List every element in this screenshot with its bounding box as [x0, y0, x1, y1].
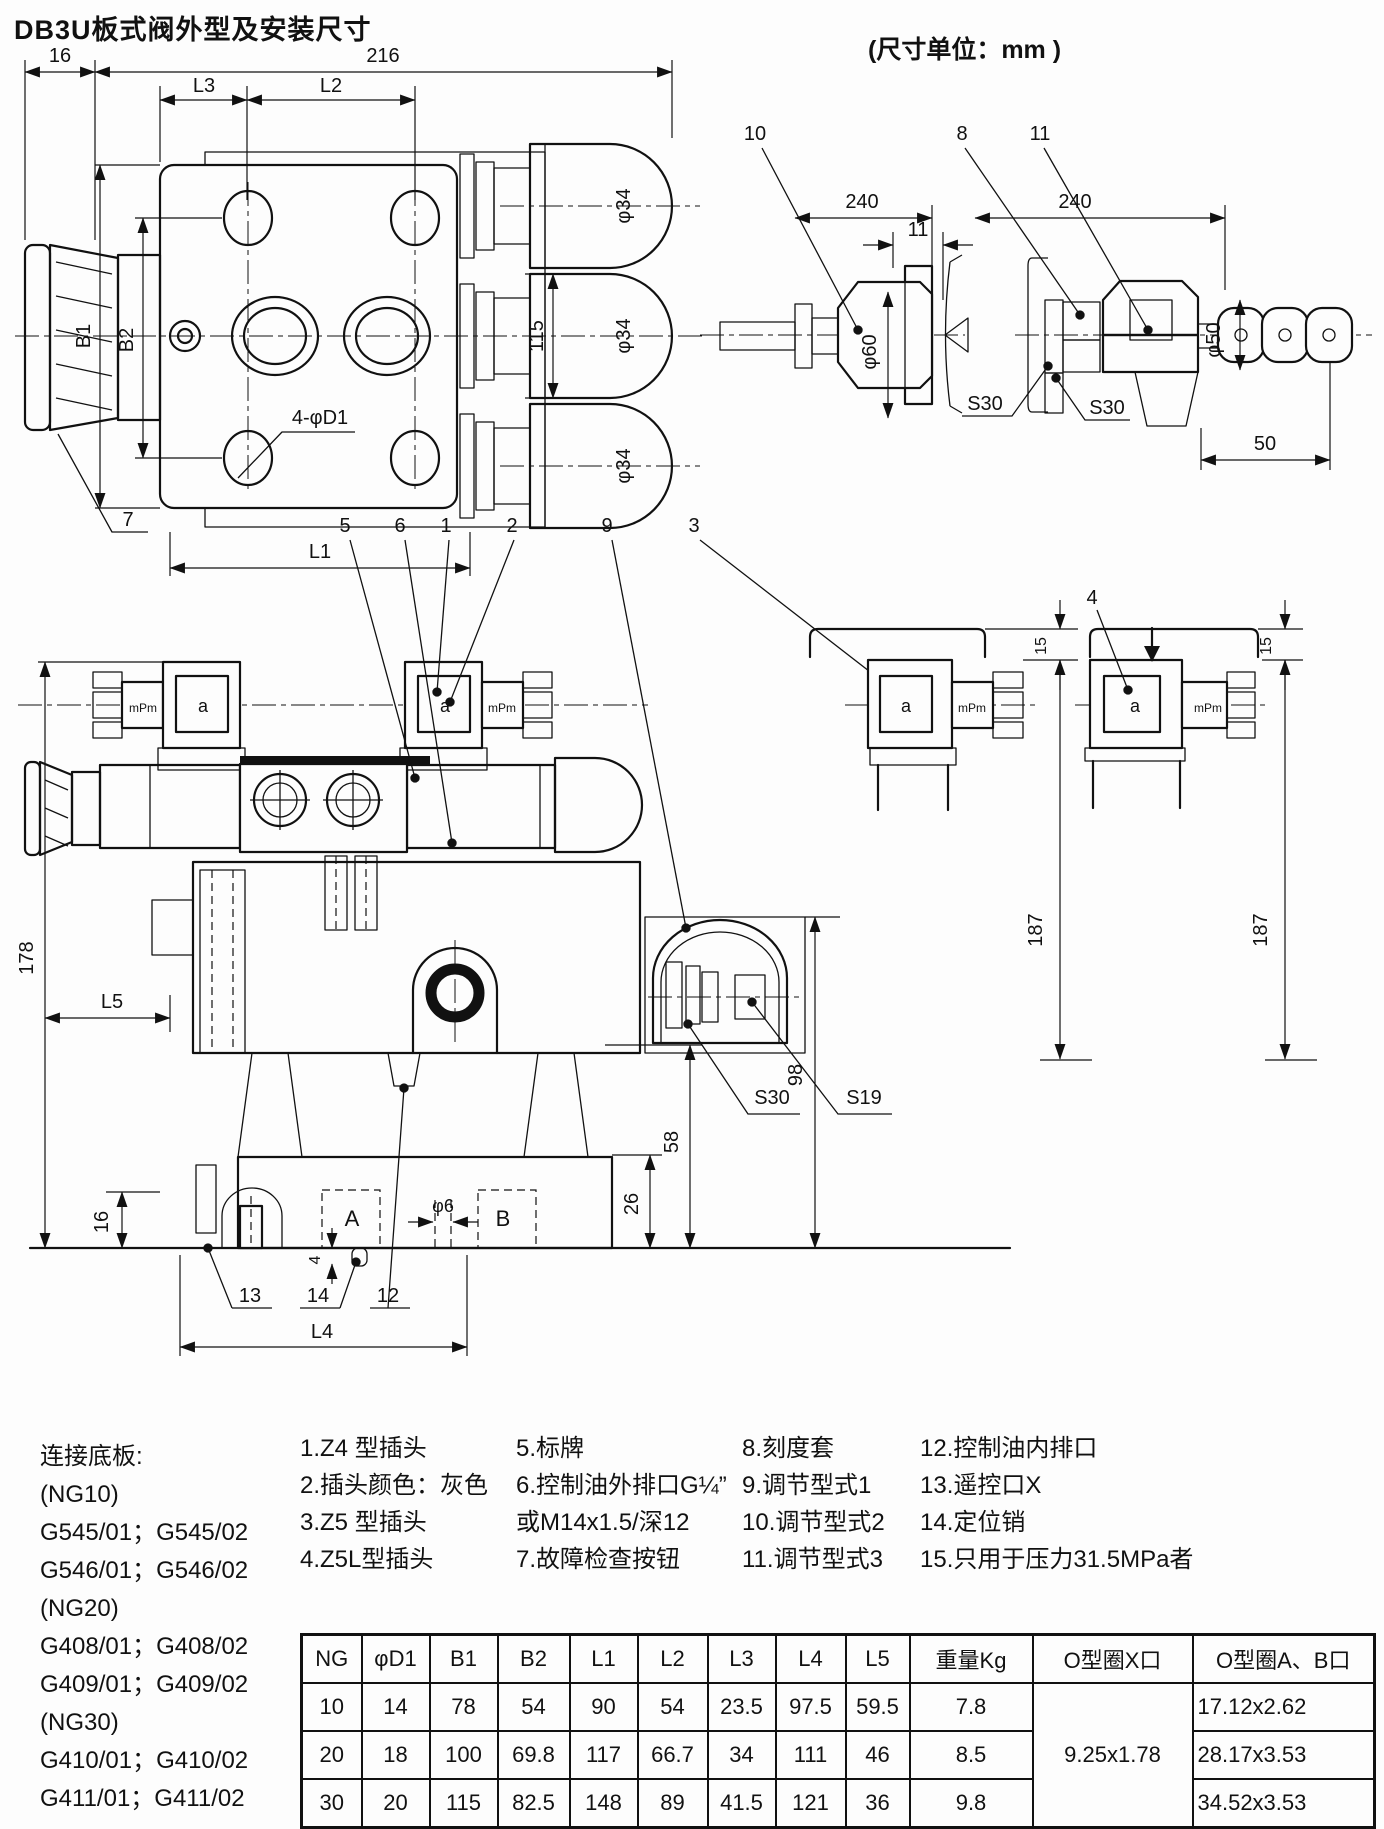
callout-S19: S19: [846, 1087, 882, 1109]
dim-B1: B1: [73, 324, 95, 348]
callout-14: 14: [307, 1285, 329, 1307]
legend-column-4: 12.控制油内排口 13.遥控口X 14.定位销 15.只用于压力31.5MPa…: [920, 1430, 1193, 1578]
legend-item: 9.调节型式1: [742, 1467, 885, 1504]
port-label-B: B: [496, 1206, 511, 1231]
col-header: 重量Kg: [910, 1635, 1033, 1684]
legend-item: 4.Z5L型插头: [300, 1541, 488, 1578]
callout-7: 7: [122, 509, 133, 531]
cell: 17.12x2.62: [1193, 1683, 1375, 1731]
dim-16: 16: [49, 45, 71, 67]
plug-mpm-label: mPm: [958, 701, 986, 715]
col-header: O型圈A、B口: [1193, 1635, 1375, 1684]
cell: 78: [430, 1683, 498, 1731]
dim-4: 4: [307, 1255, 324, 1264]
baseplate-line: 连接底板:: [40, 1438, 248, 1476]
drawing-page: DB3U板式阀外型及安装尺寸 (尺寸单位：mm ): [0, 0, 1384, 1829]
legend-column-3: 8.刻度套 9.调节型式1 10.调节型式2 11.调节型式3: [742, 1430, 885, 1578]
dim-15: 15: [1258, 637, 1275, 655]
adjust-type2-knob: φ60: [720, 255, 962, 418]
cell: 69.8: [498, 1731, 570, 1779]
cell: 117: [570, 1731, 638, 1779]
legend-item: 6.控制油外排口G¼”: [516, 1467, 727, 1504]
dim-L2: L2: [320, 75, 342, 97]
table-row: 20 18 100 69.8 117 66.7 34 111 46 8.5 28…: [302, 1731, 1375, 1779]
legend-item: 5.标牌: [516, 1430, 727, 1467]
adjustment-types-drawing: φ60 φ50: [700, 123, 1372, 470]
legend-item: 12.控制油内排口: [920, 1430, 1193, 1467]
legend-item: 2.插头颜色：灰色: [300, 1467, 488, 1504]
dim-26: 26: [621, 1193, 643, 1215]
cell: 89: [638, 1779, 708, 1828]
cell: 97.5: [776, 1683, 846, 1731]
col-header: L5: [846, 1635, 910, 1684]
dim-phi34: φ34: [613, 318, 635, 353]
legend-item: 11.调节型式3: [742, 1541, 885, 1578]
baseplate-line: (NG10): [40, 1476, 248, 1514]
dim-B2: B2: [116, 328, 138, 352]
cell: 121: [776, 1779, 846, 1828]
cell: 9.8: [910, 1779, 1033, 1828]
cell: 8.5: [910, 1731, 1033, 1779]
side-view-drawing: a mPm a mPm: [16, 515, 1010, 1356]
legend-item: 1.Z4 型插头: [300, 1430, 488, 1467]
dim-16-side: 16: [91, 1211, 113, 1233]
cell: 34: [708, 1731, 776, 1779]
plug-mpm-label: mPm: [488, 701, 516, 715]
legend-item: 8.刻度套: [742, 1430, 885, 1467]
dim-phi34: φ34: [613, 188, 635, 223]
col-header: L4: [776, 1635, 846, 1684]
plug-mpm-label: mPm: [129, 701, 157, 715]
dim-187: 187: [1250, 913, 1272, 946]
table-header-row: NG φD1 B1 B2 L1 L2 L3 L4 L5 重量Kg O型圈X口 O…: [302, 1635, 1375, 1684]
fault-check-button-side: [25, 762, 100, 855]
baseplate-line: G410/01；G410/02: [40, 1742, 248, 1780]
callout-1: 1: [440, 515, 451, 537]
callout-S30-b: S30: [1089, 397, 1125, 419]
cell: 41.5: [708, 1779, 776, 1828]
cell: 14: [362, 1683, 430, 1731]
port-label-A: A: [345, 1206, 360, 1231]
solenoid-end-cap: [555, 758, 642, 852]
legend-item: 15.只用于压力31.5MPa者: [920, 1541, 1193, 1578]
col-header: B1: [430, 1635, 498, 1684]
dim-L1: L1: [309, 541, 331, 563]
callout-4-phiD1: 4-φD1: [292, 407, 348, 429]
baseplate-line: G408/01；G408/02: [40, 1628, 248, 1666]
cell: 7.8: [910, 1683, 1033, 1731]
cell: 23.5: [708, 1683, 776, 1731]
dim-L3: L3: [193, 75, 215, 97]
cell: 90: [570, 1683, 638, 1731]
legend-item: 7.故障检查按钮: [516, 1541, 727, 1578]
cell: 115: [430, 1779, 498, 1828]
plug-mpm-label: mPm: [1194, 701, 1222, 715]
dim-115: 115: [526, 320, 548, 352]
technical-drawing: 16 216 L3 L2 B1 B2 115 φ34 φ34 φ34 4-φD1: [0, 0, 1384, 1400]
plug-detail-z5l: a mPm 4 15 187: [1075, 587, 1317, 1060]
threaded-sleeve: [1063, 302, 1100, 340]
coil-a-label: a: [198, 696, 209, 716]
callout-11: 11: [1030, 123, 1051, 145]
callout-S30: S30: [754, 1087, 790, 1109]
col-header: O型圈X口: [1033, 1635, 1193, 1684]
callout-13: 13: [239, 1285, 261, 1307]
cell: 100: [430, 1731, 498, 1779]
cell: 18: [362, 1731, 430, 1779]
cell: 10: [302, 1683, 362, 1731]
dim-15: 15: [1033, 637, 1050, 655]
cell: 20: [362, 1779, 430, 1828]
cell: 82.5: [498, 1779, 570, 1828]
callout-10: 10: [744, 123, 766, 145]
callout-S30-a: S30: [967, 393, 1003, 415]
cell-oring-x: 9.25x1.78: [1033, 1683, 1193, 1828]
adjust-type3-knob: φ50: [945, 258, 1352, 426]
dim-50: 50: [1254, 433, 1276, 455]
coil-a-label: a: [440, 696, 451, 716]
chain-link: [1306, 308, 1352, 362]
dim-phi34: φ34: [613, 448, 635, 483]
baseplate-line: G409/01；G409/02: [40, 1666, 248, 1704]
cell: 34.52x3.53: [1193, 1779, 1375, 1828]
protective-cap-section: [645, 917, 805, 1053]
callout-5: 5: [339, 515, 350, 537]
baseplate-line: (NG20): [40, 1590, 248, 1628]
table-row: 10 14 78 54 90 54 23.5 97.5 59.5 7.8 9.2…: [302, 1683, 1375, 1731]
col-header: B2: [498, 1635, 570, 1684]
callout-9: 9: [601, 515, 612, 537]
legend-column-1: 1.Z4 型插头 2.插头颜色：灰色 3.Z5 型插头 4.Z5L型插头: [300, 1430, 488, 1578]
dim-phi50: φ50: [1203, 322, 1225, 357]
table-row: 30 20 115 82.5 148 89 41.5 121 36 9.8 34…: [302, 1779, 1375, 1828]
col-header: L1: [570, 1635, 638, 1684]
callout-2: 2: [506, 515, 517, 537]
baseplate-line: G546/01；G546/02: [40, 1552, 248, 1590]
internal-drain-plug: [388, 1053, 420, 1086]
dimension-table: NG φD1 B1 B2 L1 L2 L3 L4 L5 重量Kg O型圈X口 O…: [300, 1633, 1376, 1829]
cell: 20: [302, 1731, 362, 1779]
dim-187: 187: [1025, 913, 1047, 946]
cell: 46: [846, 1731, 910, 1779]
coil-a-label: a: [1130, 696, 1141, 716]
callout-6: 6: [394, 515, 405, 537]
dim-L5: L5: [101, 991, 123, 1013]
dim-phi6: φ6: [432, 1196, 454, 1216]
dim-216: 216: [366, 45, 399, 67]
cell: 111: [776, 1731, 846, 1779]
knurled-cone: [1135, 372, 1198, 426]
col-header: L3: [708, 1635, 776, 1684]
cell: 36: [846, 1779, 910, 1828]
plug-detail-z5: a mPm 15 187: [810, 600, 1092, 1060]
callout-3: 3: [688, 515, 699, 537]
locating-pin: [352, 1248, 367, 1266]
callout-4: 4: [1086, 587, 1097, 609]
dim-240-a: 240: [845, 191, 878, 213]
dim-98: 98: [785, 1064, 807, 1086]
cell: 59.5: [846, 1683, 910, 1731]
col-header: φD1: [362, 1635, 430, 1684]
legend-item: 10.调节型式2: [742, 1504, 885, 1541]
cell: 66.7: [638, 1731, 708, 1779]
legend-item: 13.遥控口X: [920, 1467, 1193, 1504]
chain-link: [1262, 308, 1308, 362]
dim-178: 178: [16, 941, 38, 974]
legend-column-2: 5.标牌 6.控制油外排口G¼” 或M14x1.5/深12 7.故障检查按钮: [516, 1430, 727, 1578]
cell: 148: [570, 1779, 638, 1828]
callout-8: 8: [956, 123, 967, 145]
legend-item: 3.Z5 型插头: [300, 1504, 488, 1541]
dim-phi60: φ60: [859, 334, 881, 369]
baseplate-list: 连接底板: (NG10) G545/01；G545/02 G546/01；G54…: [40, 1438, 248, 1818]
cell: 30: [302, 1779, 362, 1828]
cell: 54: [638, 1683, 708, 1731]
col-header: L2: [638, 1635, 708, 1684]
remote-port-x-cap: [222, 1188, 282, 1248]
legend-item: 14.定位销: [920, 1504, 1193, 1541]
legend-item: 或M14x1.5/深12: [516, 1504, 727, 1541]
dim-58: 58: [661, 1131, 683, 1153]
cell: 54: [498, 1683, 570, 1731]
baseplate-line: G545/01；G545/02: [40, 1514, 248, 1552]
cell: 28.17x3.53: [1193, 1731, 1375, 1779]
nameplate: [240, 756, 430, 764]
dim-11: 11: [908, 219, 929, 241]
baseplate-line: G411/01；G411/02: [40, 1780, 248, 1818]
top-view-drawing: 16 216 L3 L2 B1 B2 115 φ34 φ34 φ34 4-φD1: [15, 45, 705, 576]
callout-12: 12: [377, 1285, 399, 1307]
dim-L4: L4: [311, 1321, 333, 1343]
coil-a-label: a: [901, 696, 912, 716]
baseplate-line: (NG30): [40, 1704, 248, 1742]
col-header: NG: [302, 1635, 362, 1684]
